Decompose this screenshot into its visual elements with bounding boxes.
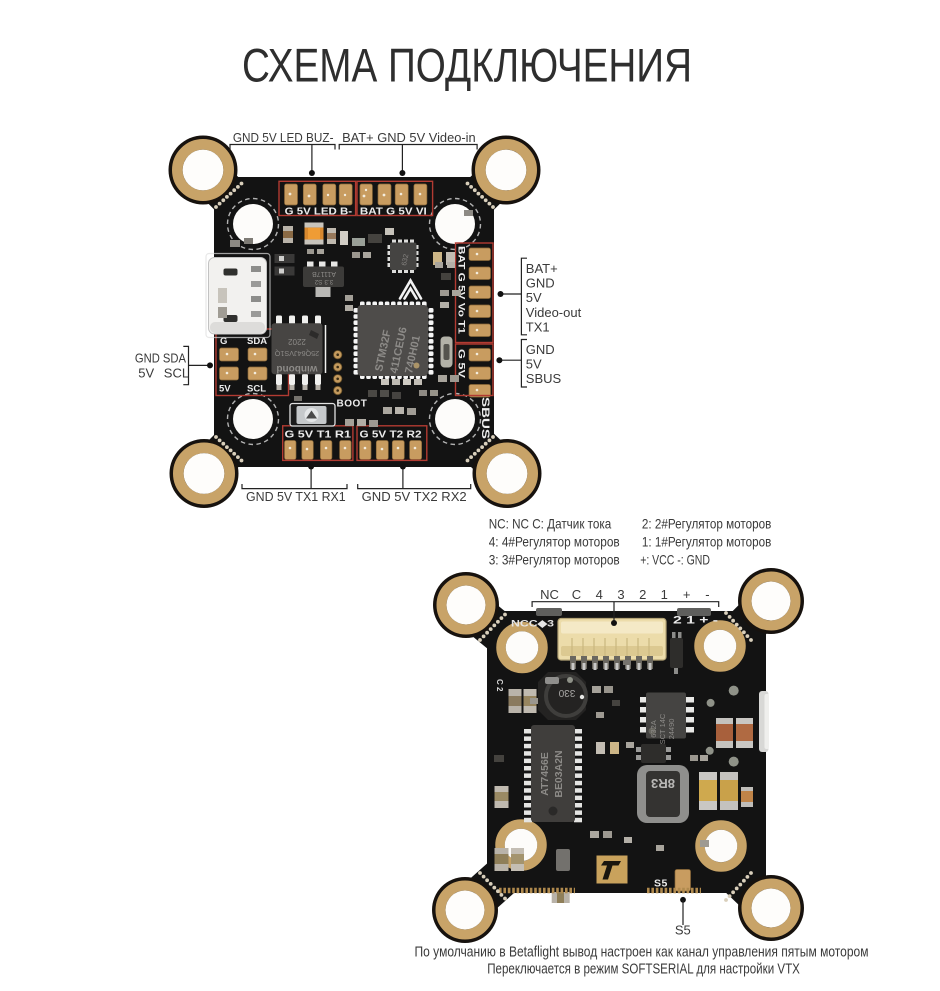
svg-text:SCL: SCL — [247, 384, 266, 395]
svg-text:1: 1#Регулятор моторов: 1: 1#Регулятор моторов — [642, 534, 771, 550]
svg-text:SCL: SCL — [164, 366, 189, 381]
svg-text:GND 5V TX1 RX1: GND 5V TX1 RX1 — [246, 489, 346, 504]
svg-text:2: 2#Регулятор моторов: 2: 2#Регулятор моторов — [642, 516, 771, 532]
svg-text:+: + — [683, 587, 691, 602]
svg-text:2: 2 — [639, 587, 646, 602]
svg-text:По умолчанию в Betaflight выво: По умолчанию в Betaflight вывод настроен… — [415, 945, 869, 961]
svg-text:СХЕМА ПОДКЛЮЧЕНИЯ: СХЕМА ПОДКЛЮЧЕНИЯ — [242, 39, 692, 92]
svg-text:5V: 5V — [219, 384, 231, 395]
svg-text:S5: S5 — [654, 878, 668, 890]
svg-text:BE03A2N: BE03A2N — [553, 750, 565, 797]
svg-text:24490: 24490 — [667, 719, 676, 740]
svg-text:-: - — [705, 587, 709, 602]
svg-text:NC: NC — [540, 587, 559, 602]
svg-text:1: 1 — [661, 587, 668, 602]
svg-text:TX1: TX1 — [526, 319, 550, 334]
svg-text:+: VCC -: GND: +: VCC -: GND — [640, 551, 710, 567]
svg-text:632A: 632A — [649, 720, 658, 738]
svg-text:GND SDA: GND SDA — [135, 350, 186, 365]
svg-text:8R3: 8R3 — [651, 776, 675, 791]
svg-text:winbond: winbond — [276, 363, 318, 374]
svg-text:G 5V T2 R2: G 5V T2 R2 — [360, 429, 422, 441]
svg-text:2 1 + -: 2 1 + - — [673, 615, 718, 627]
svg-text:S5: S5 — [675, 923, 691, 938]
svg-text:G 5V T1 R1: G 5V T1 R1 — [285, 429, 352, 441]
svg-text:SBUS: SBUS — [526, 371, 562, 386]
svg-text:C 2: C 2 — [495, 679, 504, 692]
svg-text:BAT+ GND 5V Video-in: BAT+ GND 5V Video-in — [342, 130, 476, 145]
svg-text:NC: NC C: Датчик тока: NC: NC C: Датчик тока — [489, 516, 612, 532]
svg-text:GND 5V TX2 RX2: GND 5V TX2 RX2 — [362, 489, 467, 504]
svg-text:SBUS: SBUS — [479, 397, 491, 439]
svg-text:NCC◆3: NCC◆3 — [511, 619, 554, 630]
svg-text:3: 3 — [617, 587, 624, 602]
svg-text:G 5V: G 5V — [456, 349, 467, 379]
svg-text:4: 4#Регулятор моторов: 4: 4#Регулятор моторов — [489, 534, 620, 550]
svg-text:C: C — [572, 587, 581, 602]
svg-text:5V: 5V — [526, 290, 542, 305]
svg-text:Video-out: Video-out — [526, 305, 582, 320]
svg-text:BOOT: BOOT — [337, 399, 368, 410]
svg-text:25Q64JVS1Q: 25Q64JVS1Q — [274, 349, 319, 358]
svg-text:A1117B: A1117B — [312, 270, 336, 277]
svg-text:SCT 14C: SCT 14C — [658, 713, 667, 744]
svg-text:2202: 2202 — [288, 337, 306, 346]
svg-text:3.3 S2: 3.3 S2 — [314, 278, 333, 285]
svg-text:GND 5V LED BUZ-: GND 5V LED BUZ- — [233, 130, 334, 145]
svg-text:3: 3#Регулятор моторов: 3: 3#Регулятор моторов — [489, 551, 620, 567]
svg-text:5V: 5V — [526, 356, 542, 371]
svg-text:BAT+: BAT+ — [526, 261, 558, 276]
svg-text:GND: GND — [526, 342, 555, 357]
svg-text:4: 4 — [596, 587, 603, 602]
svg-text:AT7456E: AT7456E — [539, 752, 551, 796]
svg-text:330: 330 — [558, 687, 575, 698]
svg-text:GND: GND — [526, 276, 555, 291]
svg-text:Переключается в режим SOFTSERI: Переключается в режим SOFTSERIAL для нас… — [487, 962, 800, 978]
svg-text:5V: 5V — [138, 366, 154, 381]
